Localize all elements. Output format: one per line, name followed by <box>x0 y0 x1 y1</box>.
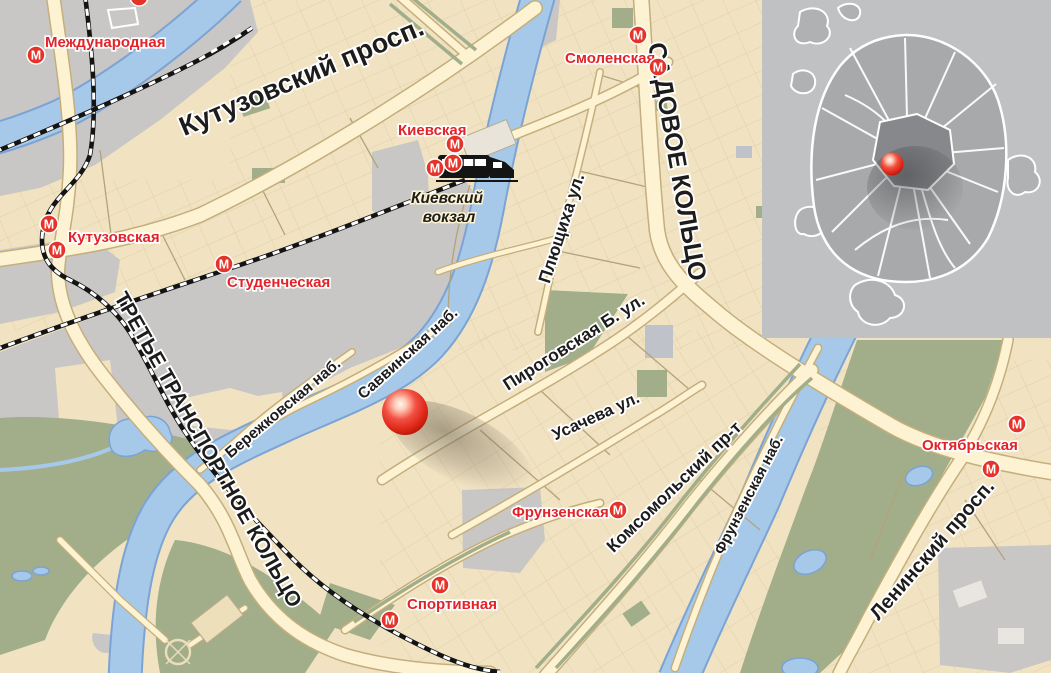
metro-icon: М <box>215 255 233 273</box>
metro-icon: М <box>381 611 399 629</box>
svg-text:М: М <box>450 137 460 151</box>
metro-label-mezhdunarodnaya: Международная <box>45 34 166 51</box>
metro-label-kutuzovskaya: Кутузовская <box>68 229 160 246</box>
metro-icon: М <box>982 460 1000 478</box>
svg-text:М: М <box>448 156 458 170</box>
metro-label-studencheskaya: Студенческая <box>227 274 330 291</box>
svg-text:М: М <box>430 161 440 175</box>
metro-icon: М <box>40 215 58 233</box>
metro-icon: М <box>27 46 45 64</box>
svg-text:М: М <box>435 578 445 592</box>
svg-text:М: М <box>31 48 41 62</box>
metro-icon: М <box>1008 415 1026 433</box>
svg-text:М: М <box>1012 417 1022 431</box>
place-label-kievsky-line2: вокзал <box>423 209 476 226</box>
metro-icon: М <box>426 159 444 177</box>
moscow-district-map[interactable]: Кутузовский просп. САДОВОЕ КОЛЬЦО ТРЕТЬЕ… <box>0 0 1051 673</box>
metro-label-smolenskaya: Смоленская <box>565 50 655 67</box>
metro-icon: М <box>446 135 464 153</box>
svg-text:М: М <box>219 257 229 271</box>
metro-label-oktyabrskaya: Октябрьская <box>922 437 1018 454</box>
metro-icon: М <box>629 26 647 44</box>
metro-icon: М <box>48 241 66 259</box>
location-marker-ball <box>382 389 428 435</box>
metro-icon: М <box>431 576 449 594</box>
svg-text:М: М <box>653 60 663 74</box>
metro-label-frunzenskaya: Фрунзенская <box>512 504 609 521</box>
inset-location-marker <box>881 153 904 176</box>
metro-icon: М <box>609 501 627 519</box>
place-label-kievsky-line1: Киевский <box>411 190 484 207</box>
svg-text:М: М <box>385 613 395 627</box>
metro-icon: М <box>444 154 462 172</box>
svg-text:М: М <box>44 217 54 231</box>
svg-text:М: М <box>52 243 62 257</box>
svg-text:М: М <box>986 462 996 476</box>
inset-map <box>762 0 1051 338</box>
metro-icon: М <box>649 58 667 76</box>
svg-text:М: М <box>613 503 623 517</box>
svg-text:М: М <box>633 28 643 42</box>
metro-label-sportivnaya: Спортивная <box>407 596 497 613</box>
